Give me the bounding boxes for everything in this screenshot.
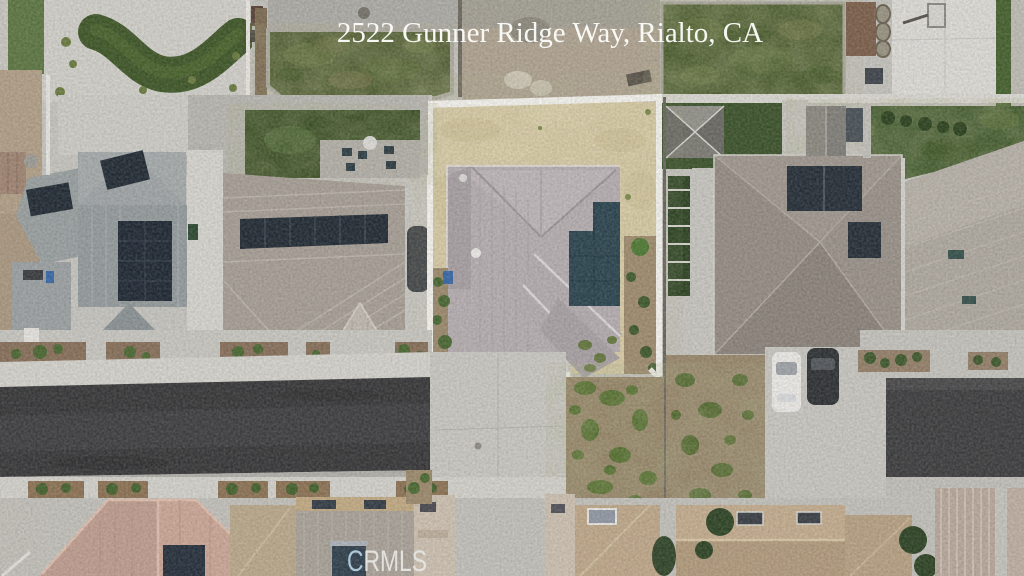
svg-text:2522 Gunner Ridge Way, Rialto,: 2522 Gunner Ridge Way, Rialto, CA — [337, 17, 763, 49]
svg-text:CRMLS: CRMLS — [347, 545, 427, 576]
